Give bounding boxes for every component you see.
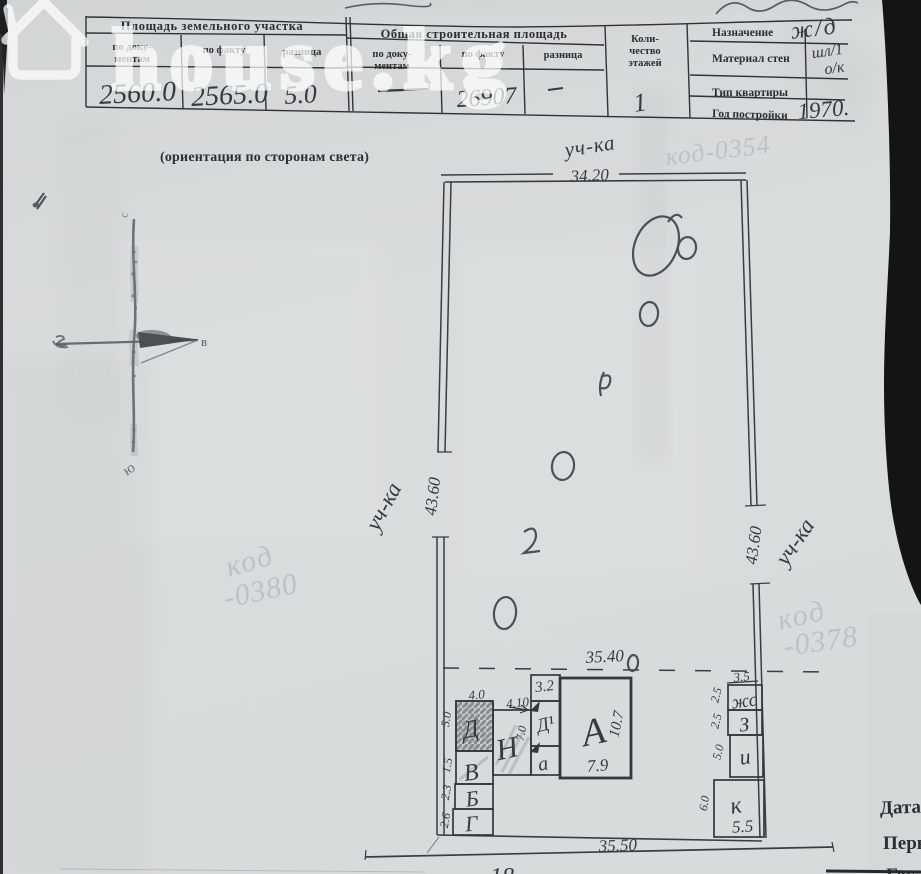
svg-text:жс: жс [730,689,759,713]
svg-text:Перв: Перв [883,833,921,854]
svg-text:3.2: 3.2 [533,678,555,696]
svg-text:Коли-: Коли- [631,34,659,45]
svg-text:6.0: 6.0 [696,795,712,812]
svg-text:2.6: 2.6 [437,812,453,829]
svg-text:34.20: 34.20 [569,165,610,186]
svg-text:в: в [201,334,207,349]
svg-text:7.0: 7.0 [513,725,529,742]
svg-text:5.5: 5.5 [731,816,754,836]
svg-text:чество: чество [629,46,660,57]
svg-text:Год постройки: Год постройки [712,108,788,122]
svg-text:Дата: Дата [879,797,921,819]
svg-text:4.0: 4.0 [468,686,486,702]
svg-text:2.3: 2.3 [438,784,454,801]
svg-text:house.kg: house.kg [112,11,515,107]
svg-text:1.5: 1.5 [439,757,455,774]
svg-text:1970.: 1970. [796,95,850,124]
svg-text:разница: разница [544,50,583,61]
svg-text:о/к: о/к [823,59,846,79]
svg-text:3.5: 3.5 [732,668,751,684]
svg-text:35.40: 35.40 [584,646,625,667]
svg-text:35.50: 35.50 [597,835,637,855]
svg-text:18: 18 [490,864,514,874]
svg-text:Материал стен: Материал стен [712,53,790,65]
svg-text:5.0: 5.0 [438,711,454,728]
svg-text:этажей: этажей [628,58,661,69]
svg-text:7.9: 7.9 [586,755,609,775]
svg-text:(ориентация по сторонам света): (ориентация по сторонам света) [160,150,369,165]
svg-text:Тип квартиры: Тип квартиры [712,87,788,99]
svg-text:Назначение: Назначение [712,27,773,39]
svg-text:4.10: 4.10 [505,694,530,711]
